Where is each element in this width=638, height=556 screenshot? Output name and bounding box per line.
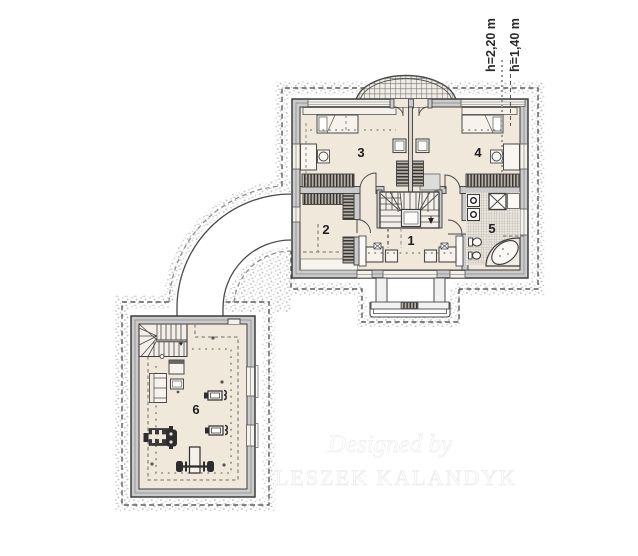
- svg-text:4: 4: [474, 145, 482, 160]
- svg-text:2: 2: [322, 222, 329, 237]
- svg-text:1: 1: [407, 233, 414, 248]
- svg-text:6: 6: [192, 402, 199, 417]
- svg-text:h=2,20 m: h=2,20 m: [484, 18, 498, 72]
- svg-text:5: 5: [488, 221, 495, 236]
- svg-text:h=1,40 m: h=1,40 m: [508, 18, 522, 72]
- svg-text:LESZEK KALANDYK: LESZEK KALANDYK: [275, 465, 517, 490]
- svg-text:Designed by: Designed by: [327, 431, 453, 458]
- svg-text:3: 3: [357, 145, 364, 160]
